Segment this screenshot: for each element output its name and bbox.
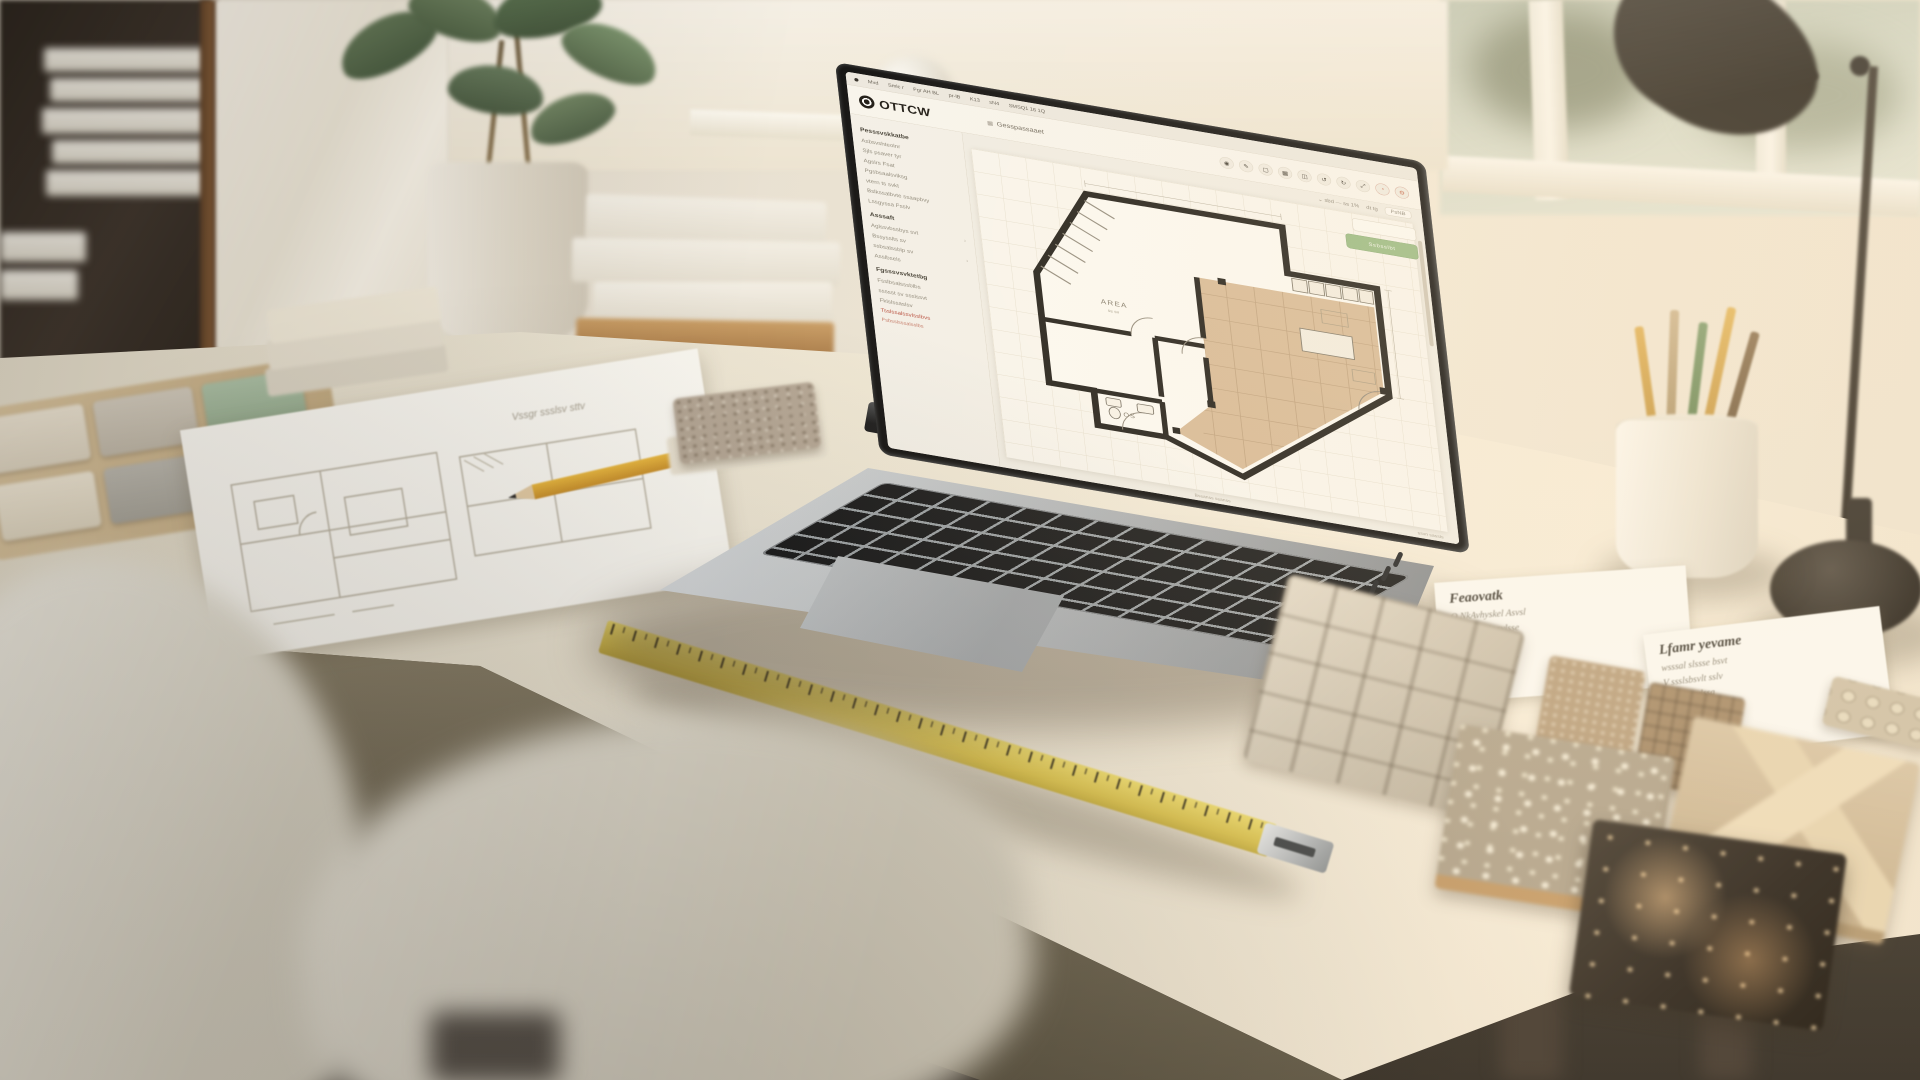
grid-tool-icon[interactable]: ▦ (1277, 166, 1293, 180)
expand-icon[interactable]: ⤢ (1355, 179, 1371, 193)
paper-stack (572, 238, 841, 287)
document-chip[interactable]: ▦ Gesspassaaet (987, 119, 1045, 135)
view-zoom-label: sbd — ss 1% (1324, 198, 1359, 209)
select-tool-icon[interactable]: ◉ (1219, 156, 1235, 170)
pencil-cup (1616, 420, 1758, 578)
menu-item[interactable]: Fgr AH BL (913, 87, 939, 97)
menu-item[interactable]: pr-lB (948, 92, 960, 99)
status-text-right: ssvn sassts (1417, 530, 1443, 539)
lamp-joint (1850, 56, 1870, 76)
brand-logo-text: OTTCW (878, 97, 931, 119)
chevron-right-icon: › (966, 256, 969, 266)
brand-logo-icon (858, 94, 875, 109)
menu-item[interactable]: Mvd (868, 79, 879, 86)
chevron-down-icon: ⌄ (1318, 197, 1324, 203)
sketch-title: Vssgr ssslsv sttv (511, 401, 587, 424)
settings-icon[interactable]: ⚙ (1394, 186, 1410, 200)
desk-scene-photo: Vssgr ssslsv sttv Bliammot Mvd Smlc r Fg… (0, 0, 1920, 1080)
document-title: Gesspassaaet (996, 121, 1044, 136)
undo-icon[interactable]: ↺ (1316, 172, 1332, 186)
menu-item[interactable]: K13 (970, 96, 981, 103)
tile-sample (0, 403, 91, 474)
dark-glossy-tile (1569, 819, 1847, 1031)
view-toggle[interactable]: dt tg (1366, 205, 1378, 212)
menu-item[interactable]: Smlc r (888, 82, 904, 90)
office-chair-stem (430, 1012, 560, 1080)
shape-tool-icon[interactable]: ▢ (1258, 163, 1274, 177)
redo-icon[interactable]: ↻ (1336, 176, 1352, 190)
tile-sample (0, 471, 102, 542)
view-mode-pill[interactable]: FsNB (1384, 207, 1412, 220)
layers-tool-icon[interactable]: ◫ (1297, 169, 1313, 183)
document-grid-icon: ▦ (987, 119, 994, 126)
paper-stack (594, 282, 832, 322)
plant-pot (428, 162, 588, 348)
pen-tool-icon[interactable]: ✎ (1238, 159, 1254, 173)
app-menu-icon[interactable] (854, 77, 859, 81)
view-dropdown[interactable]: ⌄ sbd — ss 1% (1318, 197, 1360, 209)
shelf-book (0, 270, 78, 300)
shelf-book (0, 232, 86, 262)
chevron-right-icon: › (963, 236, 966, 246)
history-icon[interactable]: ◔ (1375, 182, 1391, 196)
menu-item[interactable]: sN4 (989, 99, 1000, 106)
